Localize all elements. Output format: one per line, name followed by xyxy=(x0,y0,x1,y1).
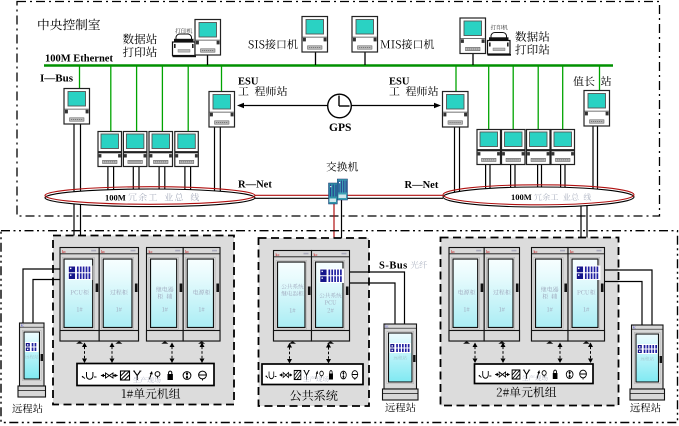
svg-text:100M: 100M xyxy=(105,193,126,203)
svg-text:kc: kc xyxy=(149,249,153,254)
svg-text:I—Bus: I—Bus xyxy=(40,73,74,85)
svg-text:R—Net: R—Net xyxy=(238,180,272,191)
svg-text:ESU: ESU xyxy=(238,77,259,88)
svg-text:S-Bus: S-Bus xyxy=(379,261,408,272)
svg-text:100M Ethernet: 100M Ethernet xyxy=(45,54,113,65)
svg-text:ESU: ESU xyxy=(389,77,410,88)
svg-text:GPS: GPS xyxy=(329,122,351,134)
svg-text:kc: kc xyxy=(185,249,189,254)
svg-text:kc: kc xyxy=(62,249,66,254)
svg-text:kc: kc xyxy=(276,252,280,257)
svg-text:kc: kc xyxy=(101,249,105,254)
svg-text:kc: kc xyxy=(570,249,574,254)
svg-text:R—Net: R—Net xyxy=(405,180,439,191)
svg-text:kc: kc xyxy=(314,252,318,257)
svg-text:kc: kc xyxy=(451,249,455,254)
svg-text:kc: kc xyxy=(534,249,538,254)
svg-text:kc: kc xyxy=(21,324,25,328)
svg-text:kc: kc xyxy=(633,326,637,330)
svg-text:kc: kc xyxy=(385,325,389,329)
svg-text:kc: kc xyxy=(486,249,490,254)
svg-text:100M: 100M xyxy=(511,192,532,202)
